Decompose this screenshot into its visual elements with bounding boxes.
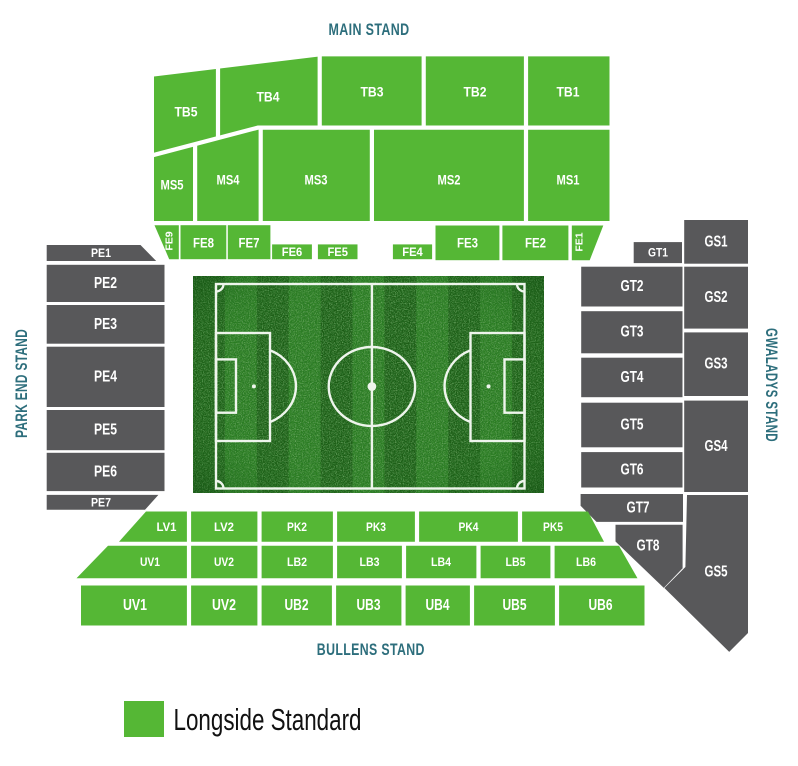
- svg-text:GS5: GS5: [705, 564, 728, 581]
- svg-text:GT6: GT6: [621, 462, 644, 479]
- svg-text:UB3: UB3: [357, 597, 381, 614]
- svg-text:PE6: PE6: [94, 464, 117, 481]
- svg-text:GWALADYS STAND: GWALADYS STAND: [762, 328, 781, 442]
- svg-text:MS4: MS4: [217, 173, 240, 188]
- svg-text:FE4: FE4: [402, 245, 423, 259]
- svg-text:UB6: UB6: [589, 597, 613, 614]
- svg-text:TB4: TB4: [257, 90, 280, 105]
- svg-text:FE8: FE8: [193, 236, 214, 251]
- svg-text:PE1: PE1: [91, 246, 111, 260]
- svg-text:UV1: UV1: [140, 555, 160, 569]
- svg-text:TB1: TB1: [557, 85, 580, 100]
- svg-text:TB2: TB2: [464, 85, 487, 100]
- svg-text:TB3: TB3: [361, 85, 384, 100]
- svg-text:GS4: GS4: [705, 438, 728, 455]
- svg-text:FE9: FE9: [164, 231, 176, 250]
- svg-text:UB2: UB2: [285, 597, 309, 614]
- svg-text:MS5: MS5: [161, 178, 184, 193]
- svg-text:LB6: LB6: [576, 555, 596, 569]
- svg-text:LB5: LB5: [506, 555, 526, 569]
- svg-text:FE5: FE5: [327, 245, 348, 259]
- svg-text:GS3: GS3: [705, 356, 728, 373]
- svg-text:MS2: MS2: [438, 173, 461, 188]
- svg-text:PE4: PE4: [94, 369, 117, 386]
- svg-text:PK5: PK5: [543, 520, 563, 534]
- svg-text:PK4: PK4: [459, 520, 479, 534]
- svg-text:FE2: FE2: [525, 236, 546, 251]
- svg-text:PE7: PE7: [91, 495, 111, 509]
- svg-text:TB5: TB5: [175, 105, 198, 120]
- svg-text:GS2: GS2: [705, 289, 728, 306]
- svg-text:LB2: LB2: [287, 555, 307, 569]
- svg-text:PE3: PE3: [94, 316, 117, 333]
- svg-text:MS3: MS3: [305, 173, 328, 188]
- svg-text:GT4: GT4: [621, 369, 644, 386]
- svg-text:LV1: LV1: [157, 520, 177, 534]
- svg-text:LB3: LB3: [360, 555, 380, 569]
- svg-text:PE2: PE2: [94, 275, 117, 292]
- svg-text:UB4: UB4: [426, 597, 450, 614]
- svg-text:UV2: UV2: [212, 597, 236, 614]
- svg-text:UV2: UV2: [214, 555, 234, 569]
- svg-text:LB4: LB4: [431, 555, 451, 569]
- svg-text:GT7: GT7: [627, 500, 650, 517]
- svg-text:LV2: LV2: [214, 520, 234, 534]
- svg-text:PK3: PK3: [366, 520, 386, 534]
- svg-text:UV1: UV1: [123, 597, 147, 614]
- svg-text:GT2: GT2: [621, 278, 644, 295]
- svg-text:FE1: FE1: [574, 232, 586, 251]
- svg-text:FE3: FE3: [457, 236, 478, 251]
- svg-text:GT1: GT1: [648, 246, 668, 260]
- svg-text:GT5: GT5: [621, 417, 644, 434]
- svg-text:FE6: FE6: [282, 245, 303, 259]
- svg-text:Longside Standard: Longside Standard: [174, 702, 362, 737]
- svg-text:GT3: GT3: [621, 324, 644, 341]
- svg-text:UB5: UB5: [503, 597, 527, 614]
- svg-text:BULLENS STAND: BULLENS STAND: [317, 640, 425, 659]
- svg-text:PARK END STAND: PARK END STAND: [12, 329, 31, 438]
- svg-text:GT8: GT8: [637, 538, 660, 555]
- svg-text:PK2: PK2: [287, 520, 307, 534]
- svg-text:GS1: GS1: [705, 234, 728, 251]
- svg-text:FE7: FE7: [239, 236, 260, 251]
- svg-text:PE5: PE5: [94, 422, 117, 439]
- svg-text:MAIN STAND: MAIN STAND: [329, 20, 410, 39]
- svg-text:MS1: MS1: [557, 173, 580, 188]
